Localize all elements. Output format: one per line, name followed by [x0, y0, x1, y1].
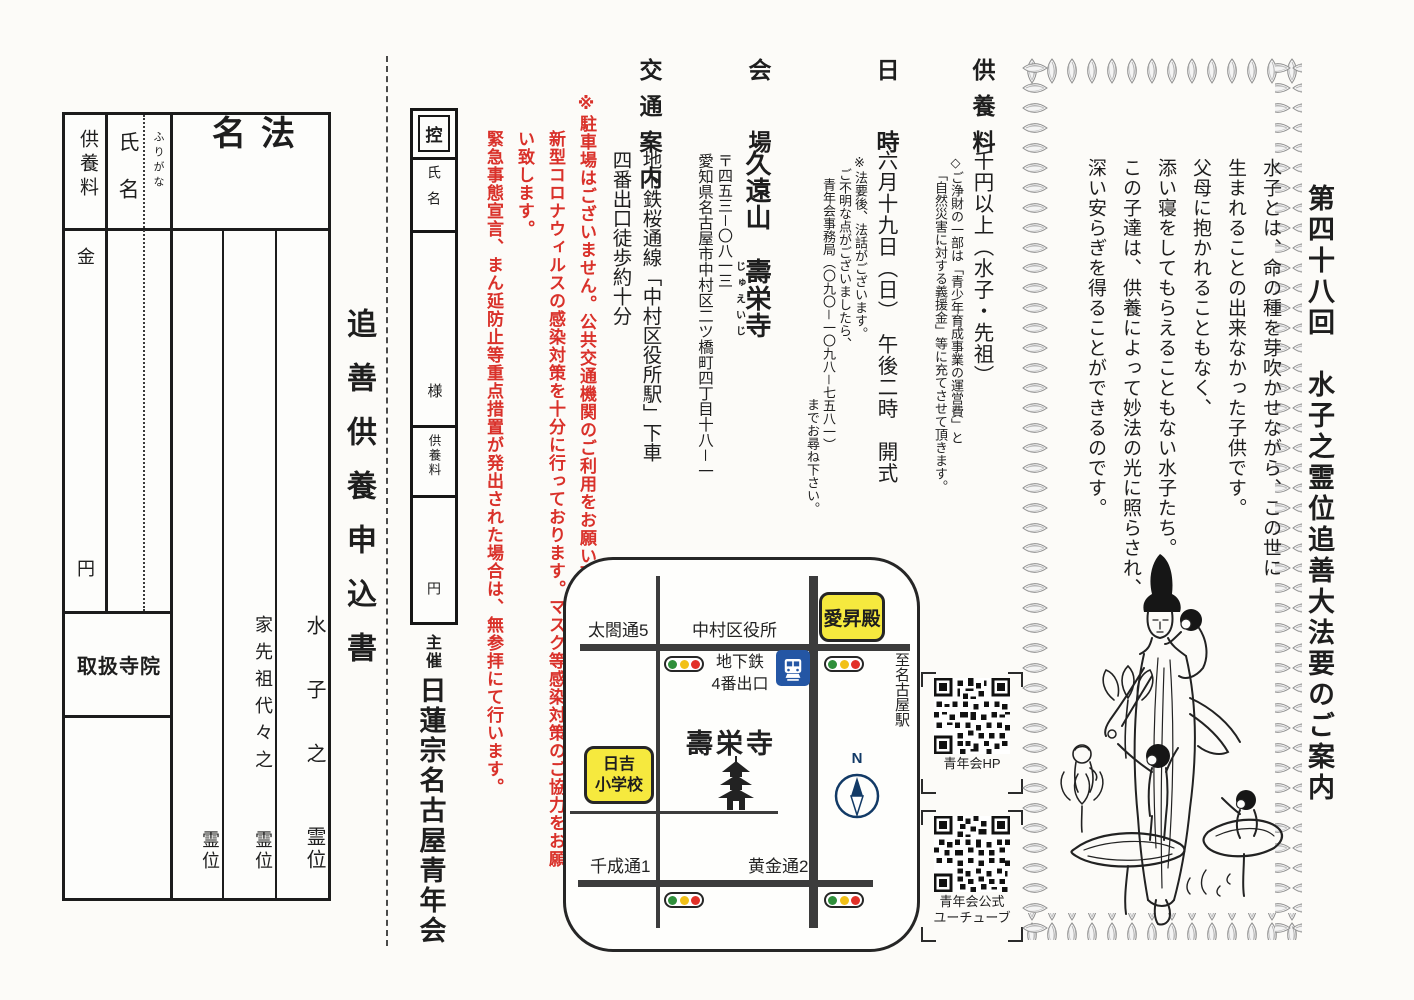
- form-handling-temple-box: 取扱寺院: [65, 614, 173, 715]
- map-subway-line-1: 地下鉄: [706, 652, 774, 674]
- form-homyo-col2-ancestors: 家先祖代々之: [224, 615, 276, 777]
- compass-icon: N: [828, 748, 886, 828]
- stub-line-4: [413, 495, 455, 498]
- compass-n-label: N: [852, 750, 863, 767]
- train-icon: [779, 653, 807, 683]
- map-school-building: 日吉 小学校: [584, 746, 654, 804]
- venue-mountain-name: 久遠山: [742, 150, 772, 258]
- qr-corner-mark: [1008, 810, 1023, 825]
- stub-line-2: [413, 230, 455, 233]
- form-name-header: 氏名: [112, 131, 142, 225]
- datetime-note-phone: 青年会事務局（〇九〇－一〇九八－七五八一）: [820, 58, 836, 524]
- qr-label-youtube-line-1: 青年会公式: [921, 894, 1023, 910]
- venue-temple-kanji: 壽栄寺: [742, 258, 772, 339]
- stub-line-3: [413, 425, 455, 428]
- stub-sama-label: 様: [424, 383, 445, 398]
- form-homyo-header: 法名: [202, 115, 300, 228]
- map-road-top: [580, 644, 910, 651]
- map-label-to-nagoya-station: 至名古屋駅: [891, 652, 912, 727]
- pagoda-icon: [714, 756, 758, 810]
- venue-temple-furigana: じゅえいじ: [734, 258, 745, 339]
- map-road-vertical-2: [809, 576, 818, 928]
- qr-label-youtube: 青年会公式 ユーチューブ: [921, 894, 1023, 926]
- flyer-main-title: 第四十八回 水子之霊位追善大法要のご案内: [1300, 184, 1339, 804]
- qr-corner-mark: [921, 672, 936, 687]
- form-homyo-col2-reii: 霊位: [224, 830, 276, 872]
- map-aishoden-label: 愛昇殿: [823, 604, 880, 631]
- stub-yen-label: 円: [424, 581, 444, 595]
- form-divider-name-homyo: [170, 115, 173, 898]
- stub-fee-label: 供養料: [425, 434, 444, 478]
- qr-label-homepage: 青年会HP: [921, 756, 1023, 772]
- form-yen-label: 円: [77, 555, 95, 581]
- fee-note-2: 「自然災害に対する義援金」等に充てさせて頂きます。: [932, 58, 948, 524]
- qr-corner-mark: [1008, 927, 1023, 942]
- datetime-note-questions: ご不明な点がございましたら、: [836, 58, 852, 524]
- sponsor-block: 主催 日蓮宗名古屋青年会: [400, 634, 462, 946]
- stub-line-1: [413, 157, 455, 160]
- map-subway-exit-label: 地下鉄 4番出口: [706, 652, 774, 696]
- venue-address: 愛知県名古屋市中村区二ツ橋町四丁目十八－一: [695, 58, 714, 524]
- qr-corner-mark: [921, 927, 936, 942]
- form-homyo-subdivider-1: [222, 231, 224, 898]
- form-furigana-header: ふりがな: [150, 131, 166, 191]
- notice-covid: 新型コロナウィルスの感染対策を十分に行っております。マスク等感染対策のご協力をお…: [509, 94, 571, 884]
- map-road-bottom: [578, 880, 873, 887]
- fee-note-1: ◇ご浄財の一部は「青少年育成事業の運営費」と: [948, 58, 964, 524]
- form-kin-label: 金: [77, 243, 95, 269]
- mizuko-intro-text: 水子とは、命の種を芽吹かせながら、この世に 生まれることの出来なかった子供です。…: [1036, 158, 1288, 598]
- intro-line-3: 父母に抱かれることもなく、: [1183, 158, 1218, 598]
- venue-postal: 〒四五三－〇八一三: [714, 58, 734, 524]
- map-school-line-1: 日吉: [603, 754, 635, 775]
- stub-hikae-label: 控: [418, 115, 450, 152]
- datetime-note-contact: までお尋ね下さい。: [804, 58, 820, 524]
- form-fee-header: 供養料: [74, 129, 101, 201]
- form-temple-box-line: [65, 715, 173, 718]
- datetime-group: 日 時 六月十九日（日） 午後二時 開式 ※法要後、法話がございます。 ご不明な…: [804, 58, 904, 524]
- scanned-flyer-sheet: 供養料 氏名 ふりがな 法名 金 円 取扱寺院 水子之 霊位 家先祖代々之 霊位…: [0, 0, 1414, 1000]
- form-divider-fee-col: [105, 115, 108, 611]
- event-info-block: 供養料 千円以上（水子・先祖） ◇ご浄財の一部は「青少年育成事業の運営費」と 「…: [588, 58, 1000, 524]
- qr-corner-mark: [1008, 779, 1023, 794]
- form-homyo-col1-reii: 霊位: [277, 826, 329, 872]
- form-header-underline: [65, 228, 328, 231]
- intro-line-6: 深い安らぎを得ることができるのです。: [1078, 158, 1113, 598]
- qr-block-youtube: 青年会公式 ユーチューブ: [921, 810, 1023, 942]
- venue-temple-name: 壽栄寺じゅえいじ: [742, 258, 772, 339]
- sponsor-label: 主催: [419, 634, 443, 670]
- qr-code-youtube-icon: [934, 816, 1010, 892]
- receipt-stub: 控 氏名 様 供養料 円: [410, 108, 458, 625]
- map-label-taiko-street: 太閤通5: [588, 616, 648, 641]
- map-school-line-2: 小学校: [595, 775, 643, 796]
- qr-block-homepage: 青年会HP: [921, 672, 1023, 794]
- intro-line-2: 生まれることの出来なかった子供です。: [1218, 158, 1253, 598]
- map-road-vertical-1: [656, 576, 660, 928]
- qr-corner-mark: [921, 810, 936, 825]
- form-homyo-col1-mizuko: 水子之: [277, 615, 329, 807]
- datetime-note-sermon: ※法要後、法話がございます。: [852, 58, 868, 524]
- sponsor-name: 日蓮宗名古屋青年会: [412, 676, 451, 946]
- notice-emergency: 緊急事態宣言、まん延防止等重点措置が発出された場合は、無参拝にて行います。: [478, 94, 509, 884]
- fee-group: 供養料 千円以上（水子・先祖） ◇ご浄財の一部は「青少年育成事業の運営費」と 「…: [932, 58, 1000, 524]
- map-label-kogane-street: 黄金通2: [748, 852, 808, 877]
- form-furigana-dotted-line: [143, 115, 145, 611]
- traffic-light-icon: [664, 656, 704, 672]
- map-side-street-left: [570, 811, 656, 814]
- stub-name-label: 氏名: [424, 165, 444, 217]
- access-map: 太閤通5 中村区役所 愛昇殿 至名古屋駅 地下鉄 4番出口 壽栄寺: [563, 557, 920, 952]
- access-group: 交通案内 地下鉄桜通線「中村区役所駅」下車 四番出口徒歩約十分: [605, 58, 667, 524]
- qr-corner-mark: [1008, 672, 1023, 687]
- qr-corner-mark: [921, 779, 936, 794]
- venue-group: 会 場 久遠山 壽栄寺じゅえいじ 〒四五三－〇八一三 愛知県名古屋市中村区二ツ橋…: [695, 58, 776, 524]
- form-homyo-col3-reii: 霊位: [171, 830, 223, 872]
- map-aishoden-building: 愛昇殿: [819, 592, 885, 642]
- map-label-sennari-street: 千成通1: [590, 852, 650, 877]
- subway-station-icon: [776, 650, 810, 686]
- memorial-application-form-table: 供養料 氏名 ふりがな 法名 金 円 取扱寺院 水子之 霊位 家先祖代々之 霊位…: [62, 112, 331, 901]
- kannon-with-children-illustration: [1040, 548, 1286, 932]
- qr-code-homepage-icon: [934, 678, 1010, 754]
- intro-line-4: 添い寝をしてもらえることもない水子たち。: [1148, 158, 1183, 598]
- traffic-light-icon: [824, 892, 864, 908]
- cut-dashed-line: [386, 56, 388, 946]
- traffic-light-icon: [664, 892, 704, 908]
- form-title: 追善供養申込書: [336, 308, 380, 686]
- traffic-light-icon: [824, 656, 864, 672]
- qr-label-youtube-line-2: ユーチューブ: [921, 910, 1023, 926]
- map-subway-line-2: 4番出口: [706, 674, 774, 696]
- intro-line-5: この子達は、供養によって妙法の光に照らされ、: [1113, 158, 1148, 598]
- map-label-ward-office: 中村区役所: [692, 616, 777, 641]
- map-side-street-right: [660, 811, 778, 814]
- intro-line-1: 水子とは、命の種を芽吹かせながら、この世に: [1253, 158, 1288, 598]
